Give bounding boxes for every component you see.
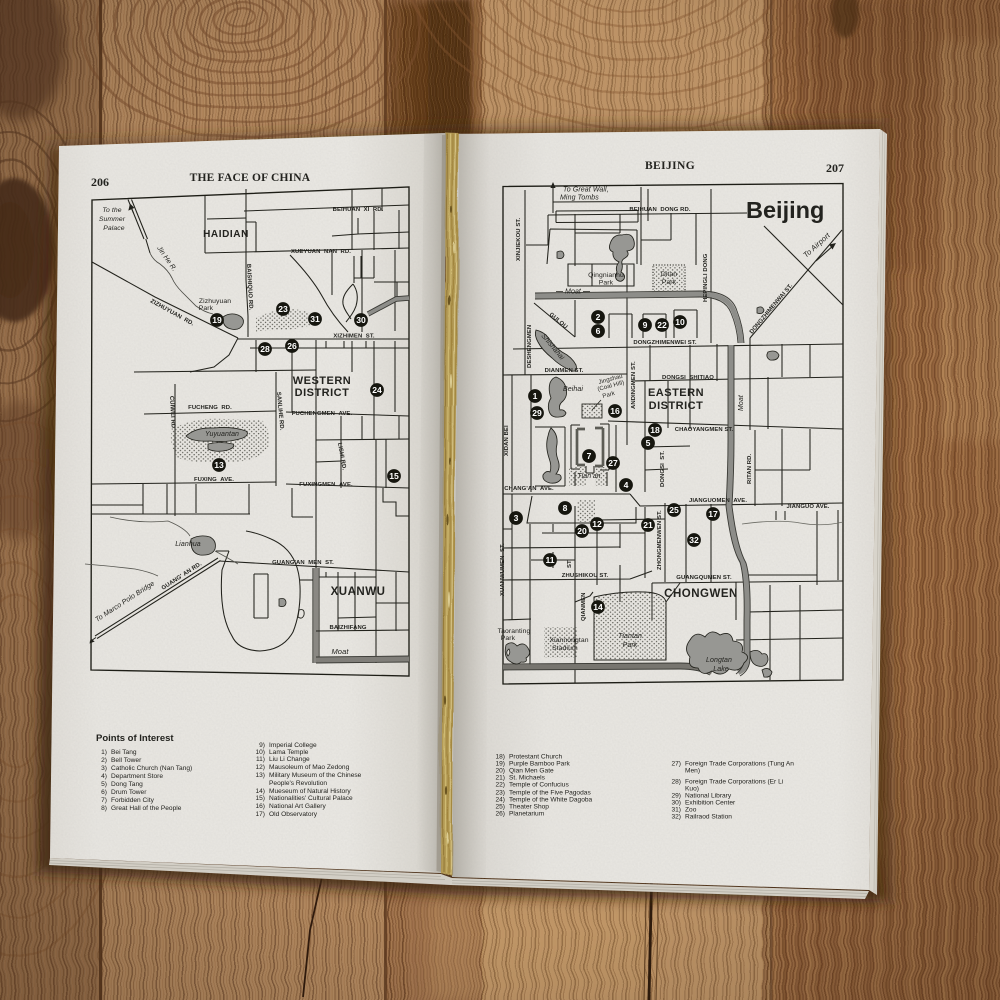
svg-text:BEIHUAN DONG RD.: BEIHUAN DONG RD. [629, 207, 691, 213]
svg-text:XUANWUMEN ST.: XUANWUMEN ST. [500, 543, 506, 596]
svg-text:13: 13 [214, 460, 224, 470]
svg-text:Park: Park [501, 635, 516, 642]
svg-text:11: 11 [545, 555, 554, 565]
svg-text:207: 207 [826, 161, 844, 175]
svg-text:9): 9) [259, 742, 265, 749]
svg-text:ZHUSHIKOU ST.: ZHUSHIKOU ST. [562, 573, 609, 579]
svg-text:32): 32) [671, 814, 681, 821]
svg-text:18: 18 [650, 425, 660, 435]
svg-text:BEIJING: BEIJING [645, 160, 695, 172]
svg-text:27): 27) [671, 761, 681, 768]
svg-text:Tiantan: Tiantan [618, 633, 642, 640]
svg-text:6): 6) [101, 789, 107, 796]
svg-text:22: 22 [657, 320, 667, 330]
svg-text:Protestant Church: Protestant Church [509, 754, 562, 761]
svg-text:DIANMEN ST.: DIANMEN ST. [545, 368, 584, 374]
svg-text:Mausoleum of Mao Zedong: Mausoleum of Mao Zedong [269, 764, 350, 771]
svg-text:3: 3 [514, 513, 519, 523]
svg-text:7): 7) [101, 797, 107, 804]
svg-text:Tian'an: Tian'an [577, 473, 600, 480]
svg-text:GUANG'AN MEN ST.: GUANG'AN MEN ST. [272, 560, 334, 566]
svg-text:19: 19 [212, 315, 222, 325]
svg-text:6: 6 [596, 326, 601, 336]
svg-text:Palace: Palace [103, 225, 125, 232]
svg-text:18): 18) [495, 754, 505, 761]
svg-text:20: 20 [577, 526, 587, 536]
svg-text:JIANGUOMEN AVE.: JIANGUOMEN AVE. [689, 498, 747, 504]
svg-text:THE FACE OF CHINA: THE FACE OF CHINA [190, 172, 311, 184]
svg-text:CHANG'AN AVE.: CHANG'AN AVE. [504, 486, 554, 492]
svg-text:Liu Li Change: Liu Li Change [269, 756, 310, 763]
svg-text:23): 23) [495, 790, 505, 797]
svg-text:30: 30 [356, 315, 366, 325]
svg-text:DISTRICT: DISTRICT [295, 387, 350, 399]
svg-text:20): 20) [495, 768, 505, 775]
svg-text:15: 15 [389, 471, 399, 481]
svg-text:8: 8 [563, 503, 568, 513]
svg-text:16: 16 [610, 406, 620, 416]
svg-text:Foreign Trade Corporations (Tu: Foreign Trade Corporations (Tung An [685, 761, 794, 768]
svg-text:17): 17) [255, 811, 265, 818]
svg-text:Nationalities' Cultural Palace: Nationalities' Cultural Palace [269, 795, 353, 802]
svg-text:XIDAN BEI: XIDAN BEI [504, 425, 510, 456]
svg-text:Purple Bamboo Park: Purple Bamboo Park [509, 761, 571, 768]
svg-text:12): 12) [255, 764, 265, 771]
svg-text:Temple of Confucius: Temple of Confucius [509, 782, 569, 789]
svg-text:GUANGQUMEN ST.: GUANGQUMEN ST. [676, 575, 732, 581]
svg-text:9: 9 [643, 320, 648, 330]
svg-text:27: 27 [608, 458, 618, 468]
svg-text:10): 10) [255, 749, 265, 756]
svg-text:DONGSI SHITIAO: DONGSI SHITIAO [662, 375, 714, 381]
svg-text:Imperial College: Imperial College [269, 742, 317, 749]
svg-text:HAIDIAN: HAIDIAN [203, 229, 249, 240]
svg-text:DISTRICT: DISTRICT [649, 400, 704, 412]
svg-text:Dong Tang: Dong Tang [111, 781, 143, 788]
svg-text:2): 2) [101, 757, 107, 764]
svg-text:Lama Temple: Lama Temple [269, 749, 309, 756]
svg-text:26: 26 [287, 341, 297, 351]
svg-text:Catholic Church (Nan Tang): Catholic Church (Nan Tang) [111, 765, 192, 772]
svg-text:10: 10 [675, 317, 685, 327]
svg-text:5): 5) [101, 781, 107, 788]
svg-text:Points of Interest: Points of Interest [96, 733, 174, 744]
svg-text:ST.: ST. [567, 559, 573, 568]
svg-text:Yuyuantan: Yuyuantan [205, 431, 239, 438]
svg-text:15): 15) [255, 795, 265, 802]
svg-text:3): 3) [101, 765, 107, 772]
svg-text:21): 21) [495, 775, 505, 782]
svg-text:1): 1) [101, 749, 107, 756]
svg-text:Mueseum of Natural History: Mueseum of Natural History [269, 788, 351, 795]
svg-text:Moat: Moat [738, 394, 745, 411]
svg-text:23: 23 [278, 304, 288, 314]
svg-text:Park: Park [662, 279, 677, 286]
svg-text:Taoranting: Taoranting [498, 628, 531, 635]
svg-text:Zizhuyuan: Zizhuyuan [199, 298, 231, 305]
svg-text:25): 25) [495, 804, 505, 811]
svg-text:FUXINGMEN AVE.: FUXINGMEN AVE. [299, 482, 353, 488]
svg-text:EASTERN: EASTERN [648, 387, 704, 399]
svg-text:4): 4) [101, 773, 107, 780]
svg-text:BEIHUAN XI RD.: BEIHUAN XI RD. [333, 207, 384, 213]
svg-text:Moat: Moat [565, 289, 582, 296]
svg-text:Qingnianhu: Qingnianhu [588, 272, 624, 279]
svg-text:People's Revolution: People's Revolution [269, 780, 327, 787]
svg-text:Ditan: Ditan [661, 271, 677, 278]
svg-text:QIANMEN: QIANMEN [581, 592, 587, 621]
svg-text:22): 22) [495, 782, 505, 789]
svg-text:Lianhua: Lianhua [175, 541, 201, 548]
svg-text:24: 24 [372, 385, 382, 395]
svg-text:19): 19) [495, 761, 505, 768]
svg-text:Exhibition Center: Exhibition Center [685, 800, 736, 807]
svg-text:1: 1 [533, 391, 538, 401]
svg-text:Foreign Trade Corporations (Er: Foreign Trade Corporations (Er Li [685, 779, 784, 786]
svg-text:Ming Tombs: Ming Tombs [560, 195, 599, 202]
svg-text:31: 31 [310, 314, 320, 324]
svg-text:7: 7 [587, 451, 592, 461]
svg-text:14: 14 [593, 602, 603, 612]
svg-text:Planetarium: Planetarium [509, 811, 545, 818]
svg-text:National Art Gallery: National Art Gallery [269, 803, 327, 810]
svg-text:11): 11) [256, 756, 265, 763]
svg-text:Stadium: Stadium [552, 645, 578, 652]
svg-text:25: 25 [669, 505, 679, 515]
svg-text:Longtan: Longtan [706, 657, 732, 664]
svg-text:Men): Men) [685, 768, 700, 775]
svg-text:RITAN RD.: RITAN RD. [747, 453, 753, 484]
svg-text:DONGZHIMENWEI ST.: DONGZHIMENWEI ST. [633, 340, 696, 346]
svg-text:21: 21 [643, 520, 653, 530]
svg-text:Great Hall of the People: Great Hall of the People [111, 805, 182, 812]
svg-text:Zoo: Zoo [685, 807, 697, 814]
svg-text:5: 5 [646, 438, 651, 448]
svg-text:FUCHENG RD.: FUCHENG RD. [188, 405, 232, 411]
svg-text:DONGSI ST.: DONGSI ST. [660, 451, 666, 487]
svg-text:4: 4 [624, 480, 629, 490]
svg-text:14): 14) [255, 788, 265, 795]
svg-text:Railraod Station: Railraod Station [685, 814, 732, 821]
svg-text:Park: Park [199, 305, 214, 312]
svg-text:28: 28 [260, 344, 270, 354]
svg-text:Kuo): Kuo) [685, 786, 699, 793]
svg-text:To the: To the [102, 207, 121, 214]
svg-text:ANDINGMEN ST.: ANDINGMEN ST. [631, 361, 637, 409]
svg-text:FUCHENGMEN AVE.: FUCHENGMEN AVE. [292, 411, 353, 417]
svg-text:Beihai: Beihai [563, 386, 583, 393]
svg-text:Park: Park [599, 280, 614, 287]
svg-text:Forbidden City: Forbidden City [111, 797, 155, 804]
svg-text:28): 28) [671, 779, 681, 786]
svg-text:12: 12 [592, 519, 602, 529]
svg-text:XUEYUAN NAN RD.: XUEYUAN NAN RD. [291, 249, 351, 255]
svg-text:26): 26) [495, 811, 505, 818]
svg-text:XINJIEKOU ST.: XINJIEKOU ST. [516, 218, 522, 261]
svg-text:13): 13) [255, 772, 265, 779]
svg-text:Beijing: Beijing [746, 197, 824, 223]
svg-text:Department Store: Department Store [111, 773, 163, 780]
svg-text:206: 206 [91, 175, 109, 189]
svg-text:CHAOYANGMEN ST.: CHAOYANGMEN ST. [675, 427, 734, 433]
svg-text:8): 8) [101, 805, 107, 812]
svg-text:WESTERN: WESTERN [293, 375, 352, 387]
svg-text:Theater Shop: Theater Shop [509, 804, 549, 811]
svg-text:Temple of the Five Pagodas: Temple of the Five Pagodas [509, 790, 591, 797]
svg-text:ZHONGMENWEN ST.: ZHONGMENWEN ST. [657, 510, 663, 570]
svg-text:St. Michaels: St. Michaels [509, 775, 546, 782]
svg-text:BAIZHIFANG: BAIZHIFANG [330, 625, 367, 631]
svg-text:30): 30) [671, 800, 681, 807]
svg-text:Bei Tang: Bei Tang [111, 749, 137, 756]
svg-text:Bell Tower: Bell Tower [111, 757, 142, 764]
svg-text:29: 29 [532, 408, 542, 418]
svg-text:16): 16) [255, 803, 265, 810]
svg-text:Drum Tower: Drum Tower [111, 789, 147, 796]
svg-text:Summer: Summer [99, 216, 126, 223]
svg-text:Old Observatory: Old Observatory [269, 811, 318, 818]
svg-text:FUXING AVE.: FUXING AVE. [194, 477, 234, 483]
svg-text:Lake: Lake [713, 666, 729, 673]
svg-text:To Great Wall,: To Great Wall, [563, 187, 609, 194]
svg-text:DESHENGMEN: DESHENGMEN [527, 325, 533, 368]
svg-text:XUANWU: XUANWU [331, 586, 386, 598]
svg-text:National Library: National Library [685, 793, 732, 800]
svg-text:17: 17 [708, 509, 718, 519]
svg-text:Military Museum of the Chinese: Military Museum of the Chinese [269, 772, 362, 779]
svg-text:XIZHIMEN ST.: XIZHIMEN ST. [333, 334, 374, 340]
svg-text:24): 24) [495, 797, 505, 804]
svg-text:32: 32 [689, 535, 699, 545]
svg-text:JIANGUO AVE.: JIANGUO AVE. [787, 504, 830, 510]
svg-text:CHONGWEN: CHONGWEN [664, 588, 738, 600]
svg-text:HEPINGLI DONG: HEPINGLI DONG [703, 253, 709, 302]
svg-text:Xiannongtan: Xiannongtan [549, 637, 588, 644]
svg-text:Temple of the White Dagoba: Temple of the White Dagoba [509, 797, 593, 804]
svg-text:Park: Park [623, 642, 638, 649]
svg-text:29): 29) [671, 793, 681, 800]
svg-text:Moat: Moat [331, 647, 349, 656]
svg-text:31): 31) [671, 807, 681, 814]
svg-text:Qian Men Gate: Qian Men Gate [509, 768, 554, 775]
svg-text:2: 2 [596, 312, 601, 322]
